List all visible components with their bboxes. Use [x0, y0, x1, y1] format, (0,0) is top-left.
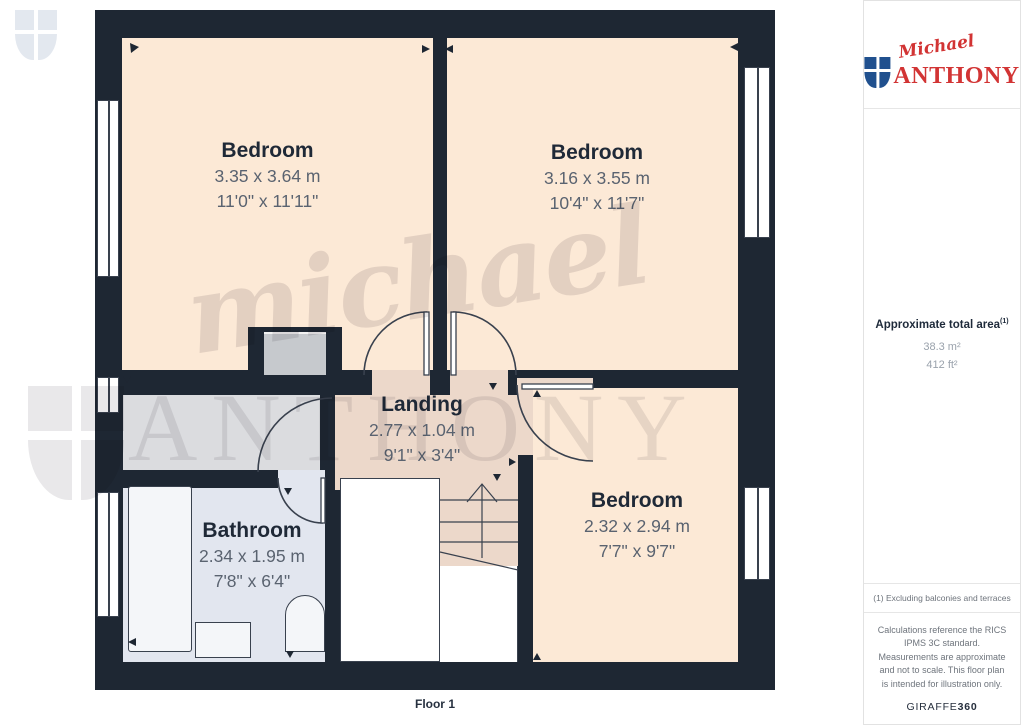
total-area-metric: 38.3 m² — [923, 338, 960, 356]
giraffe360-brand: GIRAFFE360 — [877, 700, 1007, 716]
footnote-text: (1) Excluding balconies and terraces — [864, 584, 1020, 613]
room-dim-metric: 3.16 x 3.55 m — [477, 166, 717, 191]
bedroom-3-label: Bedroom 2.32 x 2.94 m 7'7" x 9'7" — [527, 488, 747, 563]
footnote-ref: (1) — [1000, 318, 1009, 325]
room-name: Bedroom — [477, 140, 717, 166]
room-dim-metric: 2.34 x 1.95 m — [162, 544, 342, 569]
room-dim-metric: 2.32 x 2.94 m — [527, 514, 747, 539]
total-area-section: Approximate total area(1) 38.3 m² 412 ft… — [864, 109, 1020, 584]
room-dim-metric: 3.35 x 3.64 m — [150, 164, 385, 189]
floorplan-page: Bedroom 3.35 x 3.64 m 11'0" x 11'11" Bed… — [0, 0, 1024, 725]
logo-caps-text: ANTHONY — [893, 66, 1019, 88]
agency-logo: Michael ANTHONY — [864, 1, 1020, 109]
room-dim-imperial: 7'7" x 9'7" — [527, 539, 747, 564]
room-dim-imperial: 11'0" x 11'11" — [150, 189, 385, 214]
bathroom-label: Bathroom 2.34 x 1.95 m 7'8" x 6'4" — [162, 518, 342, 593]
floorplan-canvas: Bedroom 3.35 x 3.64 m 11'0" x 11'11" Bed… — [95, 10, 775, 690]
room-name: Bedroom — [527, 488, 747, 514]
landing-label: Landing 2.77 x 1.04 m 9'1" x 3'4" — [322, 392, 522, 467]
total-area-imperial: 412 ft² — [926, 356, 957, 374]
bedroom-2-label: Bedroom 3.16 x 3.55 m 10'4" x 11'7" — [477, 140, 717, 215]
room-dim-imperial: 9'1" x 3'4" — [322, 443, 522, 468]
logo-shield-icon — [864, 57, 890, 88]
room-name: Bathroom — [162, 518, 342, 544]
bedroom-1-label: Bedroom 3.35 x 3.64 m 11'0" x 11'11" — [150, 138, 385, 213]
room-name: Bedroom — [150, 138, 385, 164]
legal-section: Calculations reference the RICS IPMS 3C … — [864, 613, 1020, 724]
room-dim-metric: 2.77 x 1.04 m — [322, 418, 522, 443]
room-dim-imperial: 7'8" x 6'4" — [162, 569, 342, 594]
watermark-shield-icon-small — [15, 10, 57, 60]
room-dim-imperial: 10'4" x 11'7" — [477, 191, 717, 216]
room-name: Landing — [322, 392, 522, 418]
floor-label: Floor 1 — [95, 697, 775, 711]
total-area-title: Approximate total area(1) — [875, 318, 1008, 331]
info-sidebar: Michael ANTHONY Approximate total area(1… — [863, 0, 1021, 725]
disclaimer-text: Calculations reference the RICS IPMS 3C … — [877, 624, 1007, 692]
